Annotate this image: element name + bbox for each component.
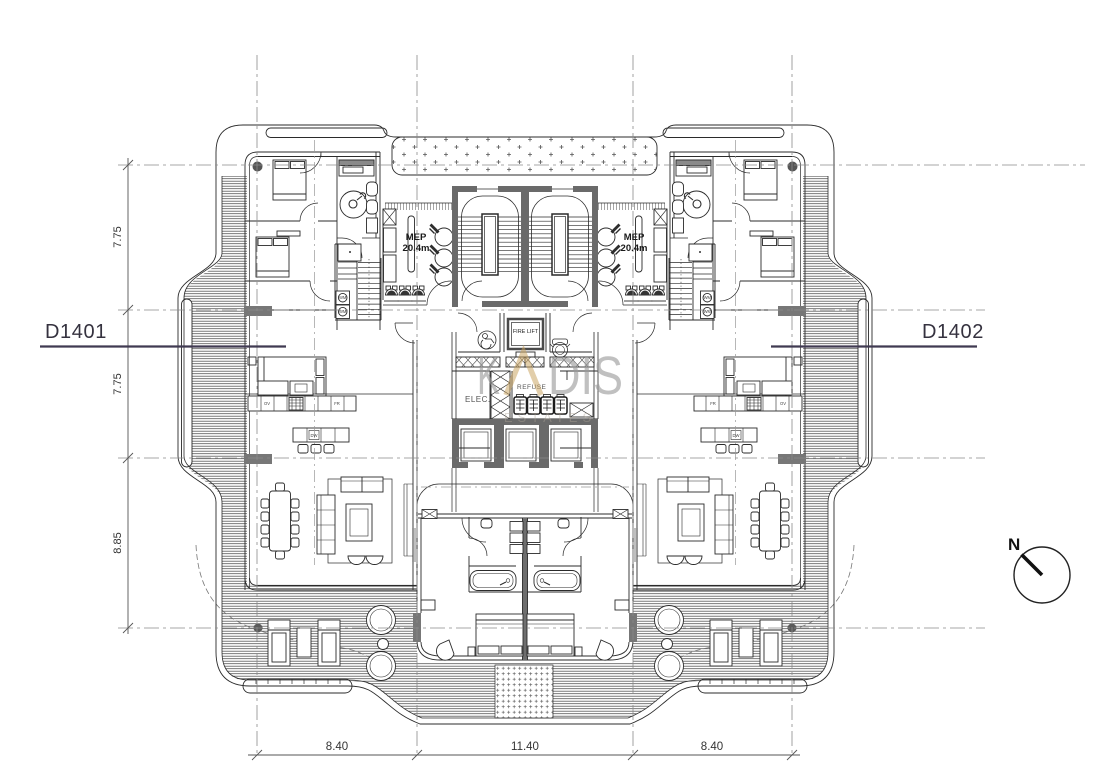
svg-text:DIS: DIS <box>548 346 623 406</box>
svg-text:8.40: 8.40 <box>326 741 348 753</box>
svg-text:8.85: 8.85 <box>112 532 124 553</box>
svg-text:7.75: 7.75 <box>112 373 124 394</box>
svg-text:REFUSE: REFUSE <box>517 384 547 391</box>
svg-text:7.75: 7.75 <box>112 226 124 247</box>
svg-text:WM: WM <box>704 295 712 300</box>
svg-text:MEP: MEP <box>624 232 645 243</box>
svg-text:20.4m: 20.4m <box>403 243 430 254</box>
svg-text:N: N <box>1008 535 1020 554</box>
svg-text:DW: DW <box>311 433 318 438</box>
svg-text:MEP: MEP <box>406 232 427 243</box>
svg-text:11.40: 11.40 <box>511 741 539 753</box>
svg-text:FR: FR <box>710 401 716 406</box>
svg-text:OV: OV <box>264 401 270 406</box>
svg-text:WM: WM <box>339 309 347 314</box>
svg-text:WM: WM <box>339 295 347 300</box>
svg-text:ESTATES: ESTATES <box>504 410 596 425</box>
svg-text:K: K <box>477 346 500 406</box>
svg-text:OV: OV <box>780 401 786 406</box>
svg-text:8.40: 8.40 <box>701 741 723 753</box>
svg-text:WM: WM <box>704 309 712 314</box>
svg-text:D1402: D1402 <box>922 321 984 343</box>
svg-text:20.4m: 20.4m <box>621 243 648 254</box>
svg-text:FIRE LIFT: FIRE LIFT <box>513 329 539 335</box>
svg-text:D1401: D1401 <box>45 321 107 343</box>
svg-text:FR: FR <box>334 401 340 406</box>
svg-text:DW: DW <box>733 433 740 438</box>
